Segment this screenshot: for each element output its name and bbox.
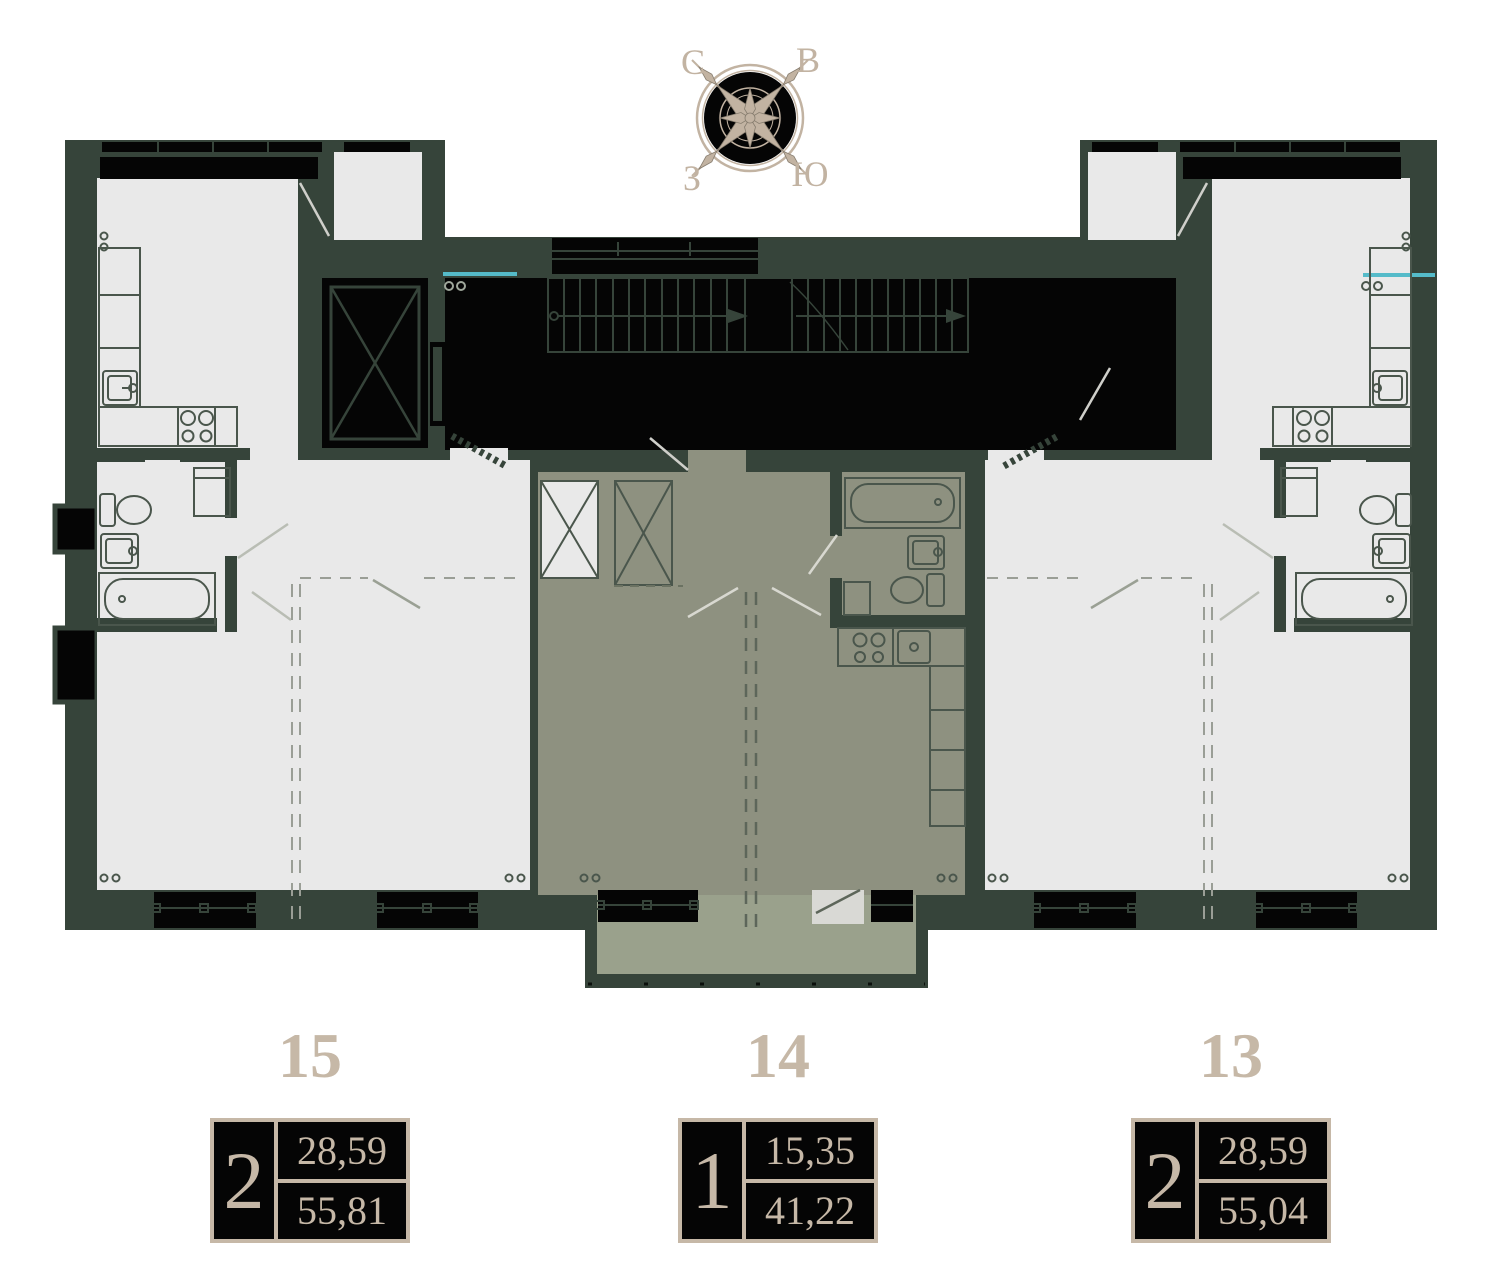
unit-number: 15 — [210, 1010, 410, 1102]
unit-info-box: 2 28,59 55,04 — [1131, 1118, 1331, 1243]
unit-total-area: 41,22 — [746, 1183, 874, 1240]
apartment-14-rooms[interactable] — [538, 472, 965, 895]
unit-living-area: 28,59 — [278, 1122, 406, 1183]
apartment-15-rooms[interactable] — [97, 460, 530, 890]
unit-info-box: 1 15,35 41,22 — [678, 1118, 878, 1243]
elevator-shaft — [322, 278, 445, 448]
compass-north-label: С — [681, 42, 705, 82]
facade-pier — [55, 506, 97, 552]
unit-total-area: 55,81 — [278, 1183, 406, 1240]
closet-icon — [541, 481, 598, 578]
unit-info-box: 2 28,59 55,81 — [210, 1118, 410, 1243]
teal-accent — [1363, 273, 1435, 277]
unit-total-area: 55,04 — [1199, 1183, 1327, 1240]
unit-living-area: 15,35 — [746, 1122, 874, 1183]
floorplan-page: С В З Ю 15 2 28,59 55,81 14 1 15,35 41,2… — [0, 0, 1500, 1269]
facade-pier — [55, 628, 97, 702]
unit-rooms-count: 1 — [682, 1122, 746, 1239]
compass: С В З Ю — [681, 40, 829, 198]
unit-rooms-count: 2 — [214, 1122, 278, 1239]
unit-legend-15[interactable]: 15 2 28,59 55,81 — [210, 1010, 410, 1243]
unit-number: 14 — [678, 1010, 878, 1102]
stair-core — [322, 278, 1176, 450]
compass-east-label: В — [796, 40, 820, 80]
unit-rooms-count: 2 — [1135, 1122, 1199, 1239]
unit-living-area: 28,59 — [1199, 1122, 1327, 1183]
unit-legend-13[interactable]: 13 2 28,59 55,04 — [1131, 1010, 1331, 1243]
compass-south-label: Ю — [791, 154, 828, 194]
teal-accent — [443, 272, 517, 276]
apartment-13-rooms[interactable] — [985, 460, 1410, 890]
unit-legend-14[interactable]: 14 1 15,35 41,22 — [678, 1010, 878, 1243]
unit-number: 13 — [1131, 1010, 1331, 1102]
left-vestibule — [334, 152, 422, 240]
compass-west-label: З — [683, 158, 701, 198]
right-vestibule — [1088, 152, 1176, 240]
